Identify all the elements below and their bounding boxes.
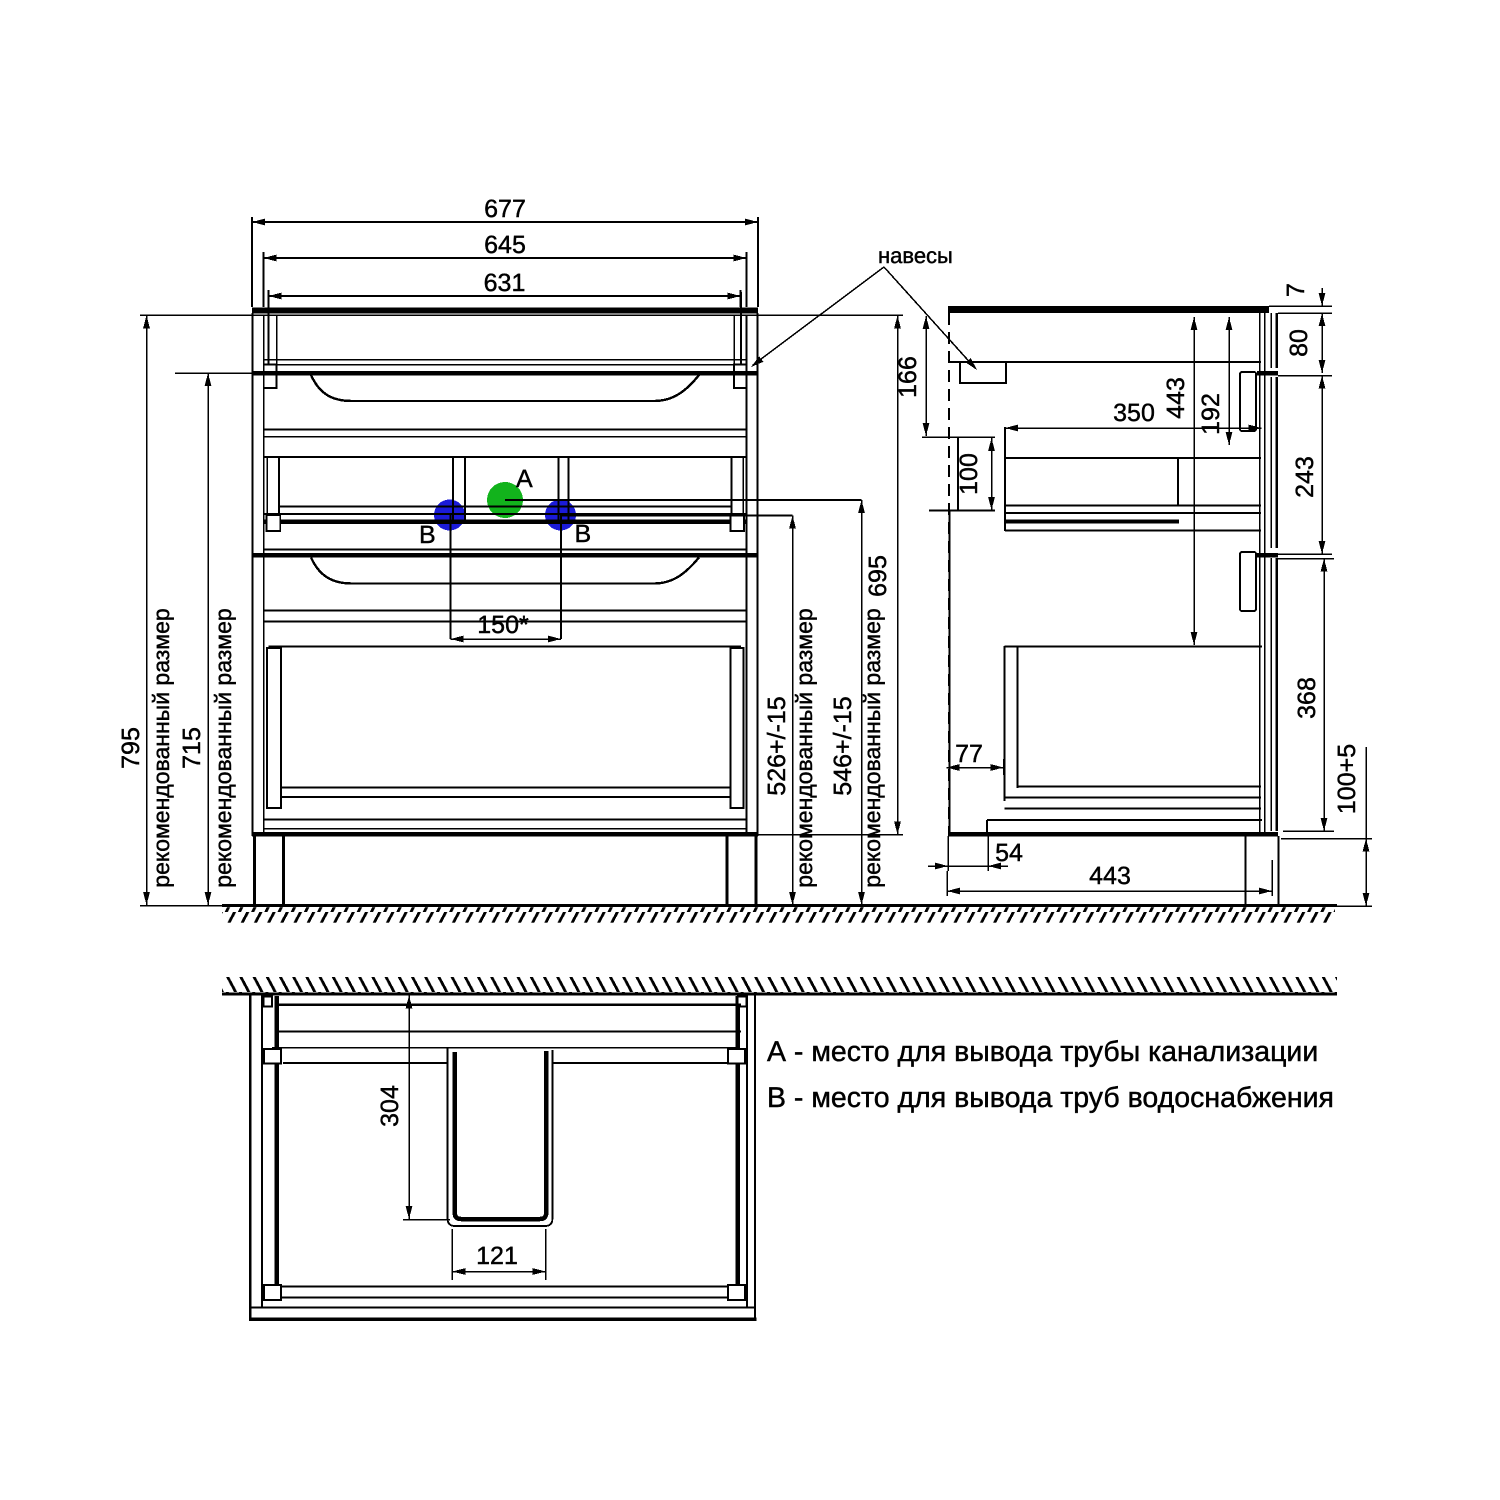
- svg-text:695: 695: [864, 555, 892, 597]
- svg-text:рекомендованный размер: рекомендованный размер: [210, 608, 236, 887]
- svg-text:B: B: [575, 520, 592, 548]
- svg-text:166: 166: [894, 356, 922, 398]
- svg-text:243: 243: [1291, 456, 1319, 498]
- svg-text:рекомендованный размер: рекомендованный размер: [791, 608, 817, 887]
- svg-text:677: 677: [484, 195, 526, 223]
- svg-text:B: B: [419, 521, 436, 549]
- svg-text:546+/-15: 546+/-15: [829, 696, 857, 795]
- svg-text:54: 54: [995, 839, 1023, 867]
- svg-text:навесы: навесы: [878, 243, 953, 268]
- svg-text:A: A: [516, 465, 533, 493]
- svg-text:рекомендованный размер: рекомендованный размер: [148, 608, 174, 887]
- svg-text:350: 350: [1113, 399, 1155, 427]
- svg-text:645: 645: [484, 231, 526, 259]
- svg-text:100: 100: [955, 453, 983, 495]
- svg-text:368: 368: [1293, 677, 1321, 719]
- svg-text:А - место для вывода трубы кан: А - место для вывода трубы канализации: [767, 1036, 1318, 1068]
- svg-text:121: 121: [476, 1242, 518, 1270]
- svg-text:рекомендованный размер: рекомендованный размер: [859, 608, 885, 887]
- svg-text:7: 7: [1282, 283, 1310, 297]
- svg-text:192: 192: [1197, 393, 1225, 435]
- svg-text:80: 80: [1285, 329, 1313, 357]
- svg-text:631: 631: [484, 269, 526, 297]
- svg-text:В - место для вывода труб водо: В - место для вывода труб водоснабжения: [767, 1082, 1334, 1114]
- svg-text:443: 443: [1089, 862, 1131, 890]
- svg-text:100+5: 100+5: [1333, 744, 1361, 814]
- svg-text:150*: 150*: [477, 611, 529, 639]
- svg-text:443: 443: [1162, 377, 1190, 419]
- svg-text:795: 795: [117, 727, 145, 769]
- svg-text:77: 77: [955, 740, 983, 768]
- svg-text:526+/-15: 526+/-15: [763, 696, 791, 795]
- svg-text:304: 304: [376, 1085, 404, 1127]
- svg-text:715: 715: [178, 727, 206, 769]
